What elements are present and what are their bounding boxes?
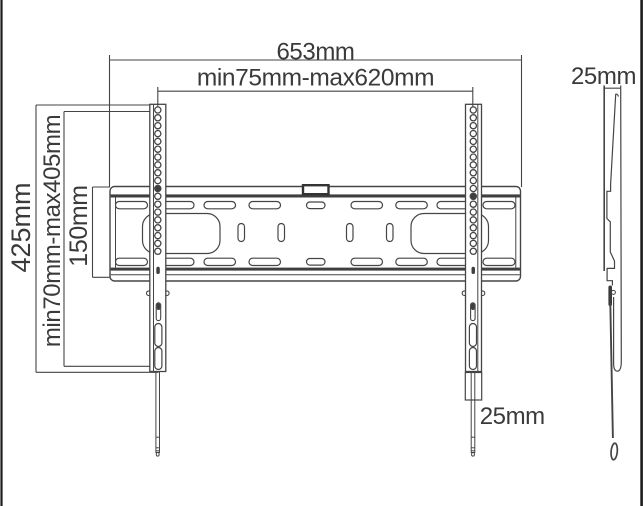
svg-text:min70mm-max405mm: min70mm-max405mm	[39, 115, 66, 347]
svg-text:425mm: 425mm	[6, 182, 36, 272]
svg-text:150mm: 150mm	[65, 185, 93, 266]
svg-text:653mm: 653mm	[276, 39, 354, 66]
svg-text:min75mm-max620mm: min75mm-max620mm	[197, 65, 434, 92]
svg-text:25mm: 25mm	[480, 403, 545, 430]
